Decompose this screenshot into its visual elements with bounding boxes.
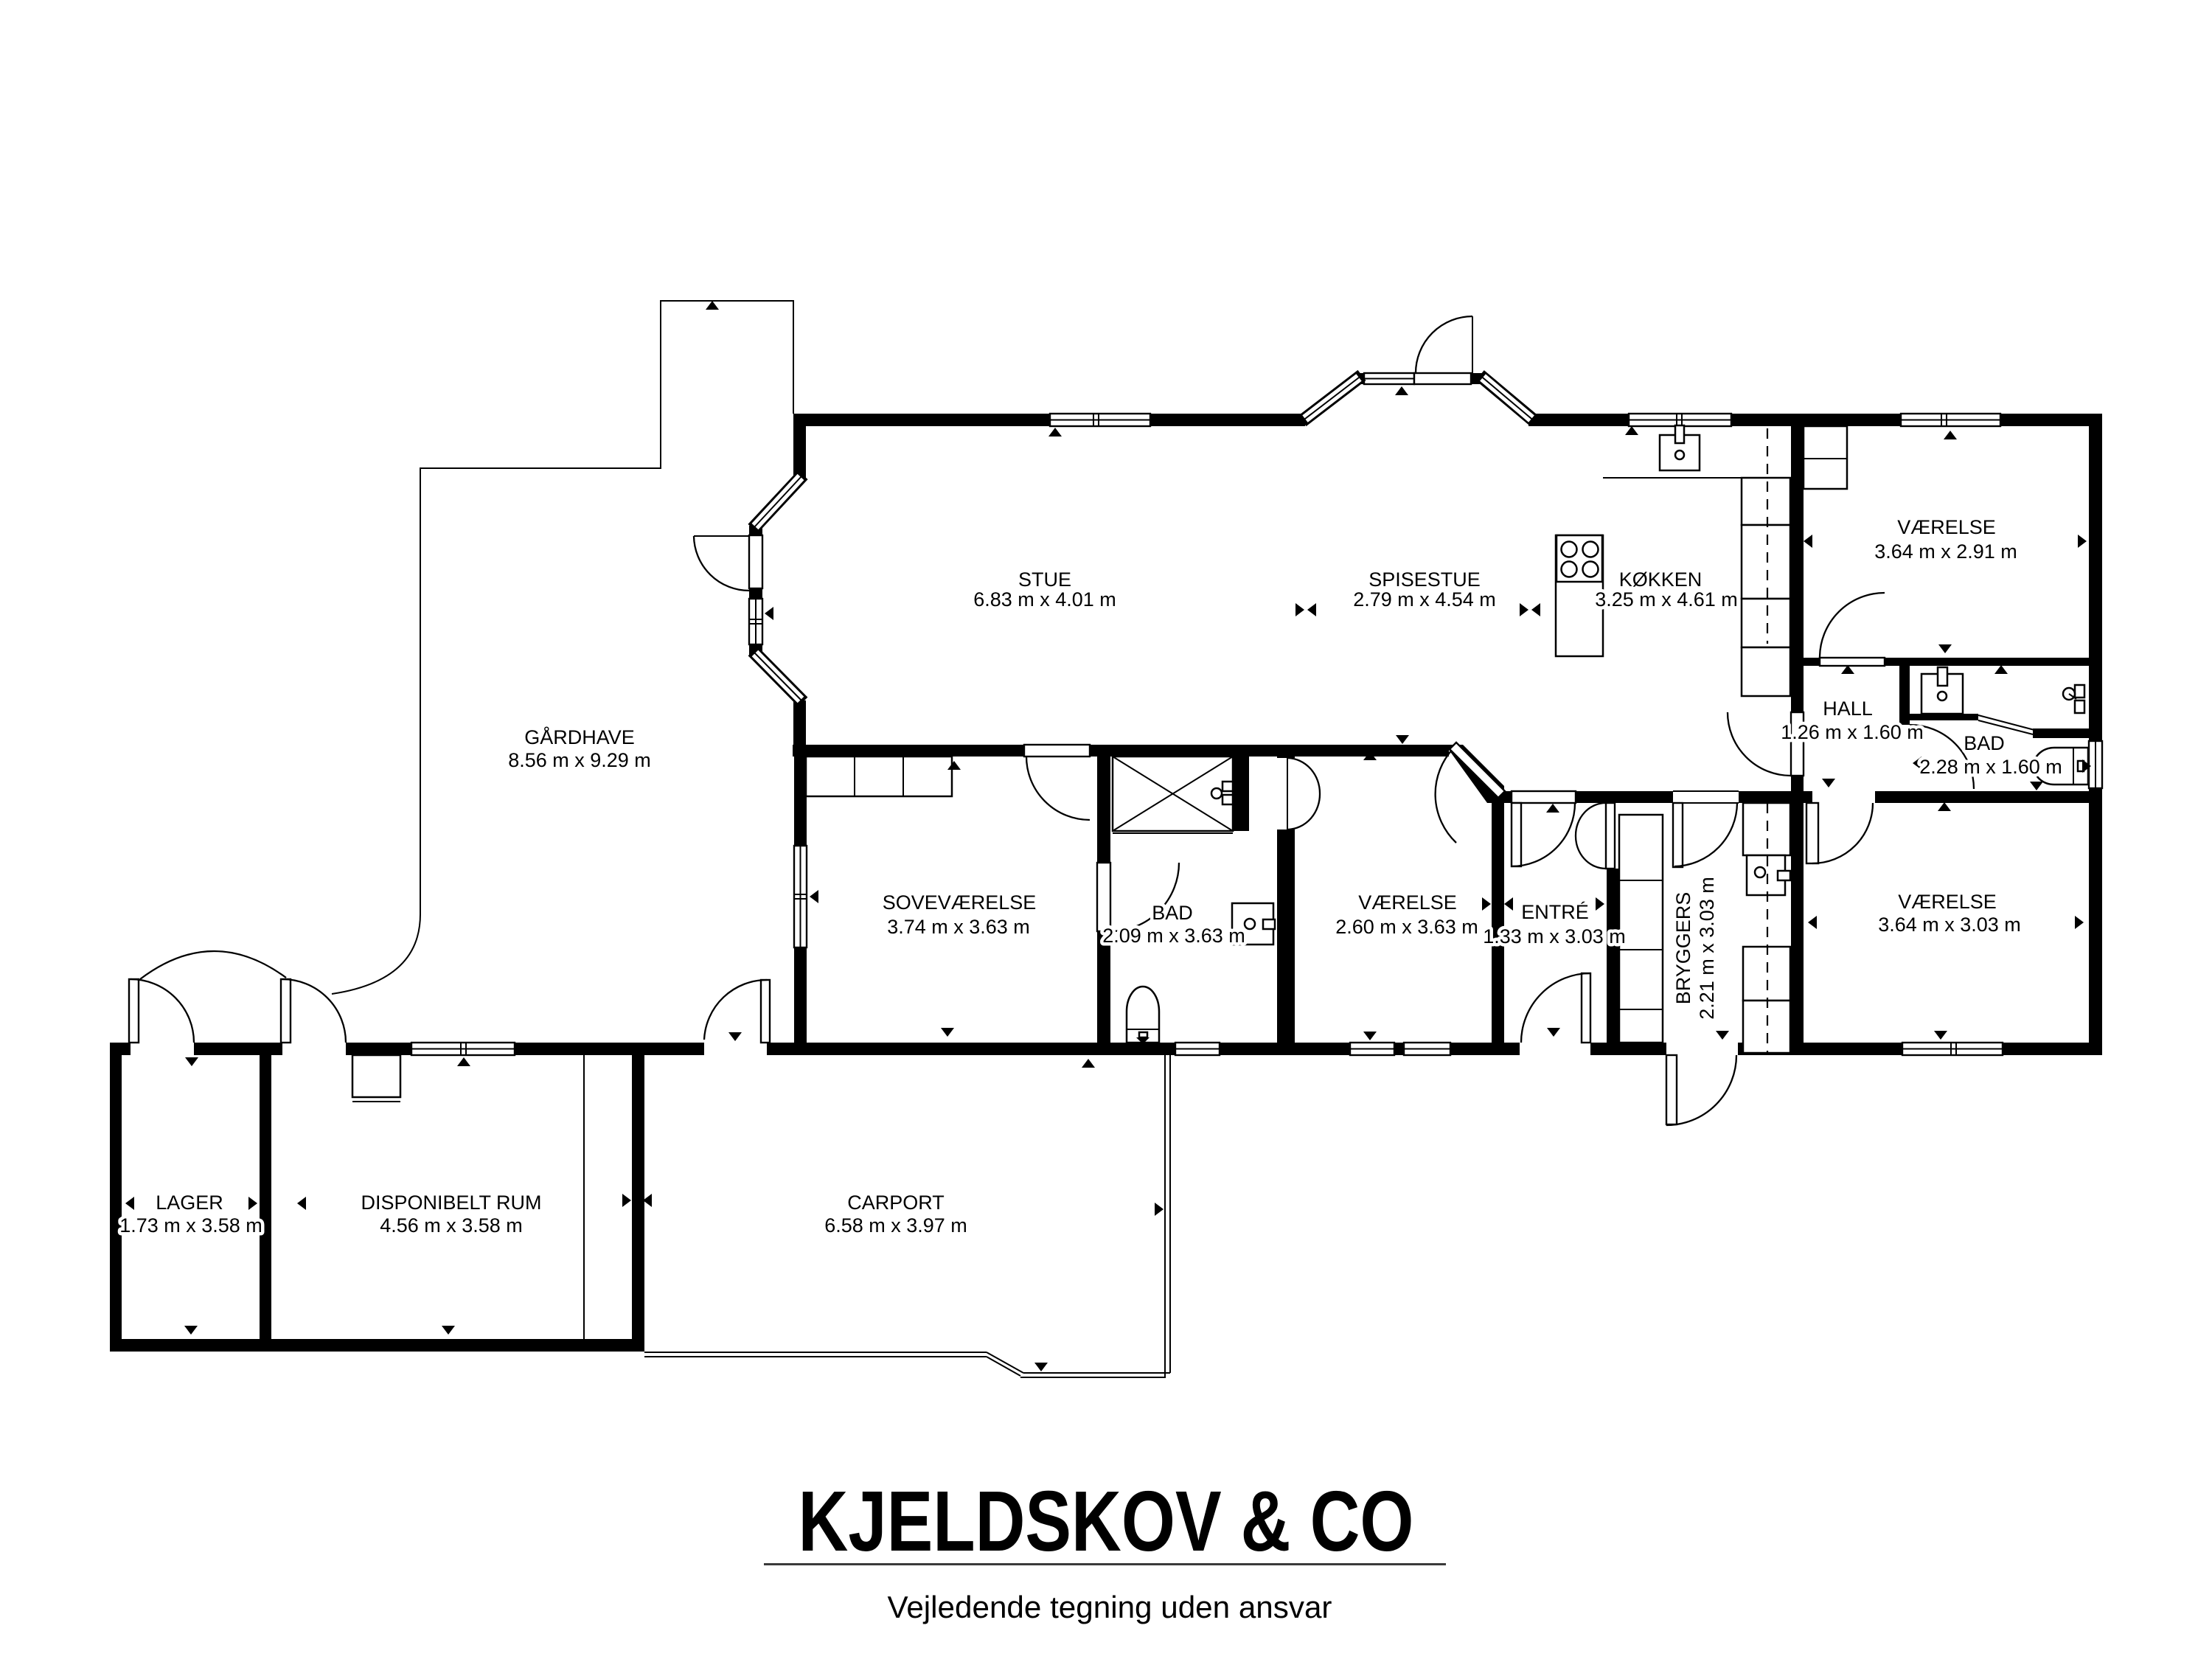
svg-text:HALL: HALL	[1823, 698, 1873, 720]
svg-text:3.25 m x 4.61 m: 3.25 m x 4.61 m	[1595, 588, 1738, 611]
svg-text:BAD: BAD	[1964, 732, 2005, 754]
svg-text:LAGER: LAGER	[156, 1192, 223, 1214]
svg-text:8.56 m x 9.29 m: 8.56 m x 9.29 m	[508, 749, 651, 771]
svg-text:CARPORT: CARPORT	[847, 1192, 945, 1214]
svg-text:1.33 m x 3.03 m: 1.33 m x 3.03 m	[1483, 925, 1626, 947]
svg-text:KØKKEN: KØKKEN	[1619, 568, 1703, 591]
svg-text:SPISESTUE: SPISESTUE	[1368, 568, 1481, 591]
svg-text:3.64 m x 3.03 m: 3.64 m x 3.03 m	[1878, 914, 2021, 936]
svg-text:2.21 m x 3.03 m: 2.21 m x 3.03 m	[1696, 877, 1718, 1020]
svg-text:VÆRELSE: VÆRELSE	[1358, 891, 1457, 914]
svg-text:ENTRÉ: ENTRÉ	[1521, 901, 1589, 923]
svg-text:4.56 m x 3.58 m: 4.56 m x 3.58 m	[380, 1214, 523, 1237]
svg-text:GÅRDHAVE: GÅRDHAVE	[524, 726, 635, 748]
svg-text:3.64 m x 2.91 m: 3.64 m x 2.91 m	[1874, 540, 2017, 563]
svg-text:1.26 m x 1.60 m: 1.26 m x 1.60 m	[1781, 721, 1924, 743]
svg-text:2.09 m x 3.63 m: 2.09 m x 3.63 m	[1102, 925, 1245, 947]
svg-text:6.58 m x 3.97 m: 6.58 m x 3.97 m	[824, 1214, 967, 1237]
svg-text:BRYGGERS: BRYGGERS	[1672, 892, 1694, 1005]
svg-text:3.74 m x 3.63 m: 3.74 m x 3.63 m	[887, 916, 1030, 938]
svg-text:BAD: BAD	[1152, 902, 1193, 924]
svg-text:VÆRELSE: VÆRELSE	[1898, 891, 1997, 913]
svg-text:KJELDSKOV & CO: KJELDSKOV & CO	[799, 1473, 1414, 1569]
svg-text:DISPONIBELT RUM: DISPONIBELT RUM	[361, 1192, 541, 1214]
svg-text:2.79 m x 4.54 m: 2.79 m x 4.54 m	[1353, 588, 1496, 611]
svg-text:STUE: STUE	[1018, 568, 1071, 591]
svg-text:2.28 m x 1.60 m: 2.28 m x 1.60 m	[1919, 756, 2062, 778]
svg-text:VÆRELSE: VÆRELSE	[1897, 516, 1996, 538]
svg-text:Vejledende tegning uden ansvar: Vejledende tegning uden ansvar	[888, 1590, 1332, 1624]
svg-text:1.73 m x 3.58 m: 1.73 m x 3.58 m	[119, 1214, 262, 1237]
svg-text:6.83 m x 4.01 m: 6.83 m x 4.01 m	[973, 588, 1116, 611]
svg-text:2.60 m x 3.63 m: 2.60 m x 3.63 m	[1335, 916, 1478, 938]
svg-text:SOVEVÆRELSE: SOVEVÆRELSE	[883, 891, 1037, 914]
